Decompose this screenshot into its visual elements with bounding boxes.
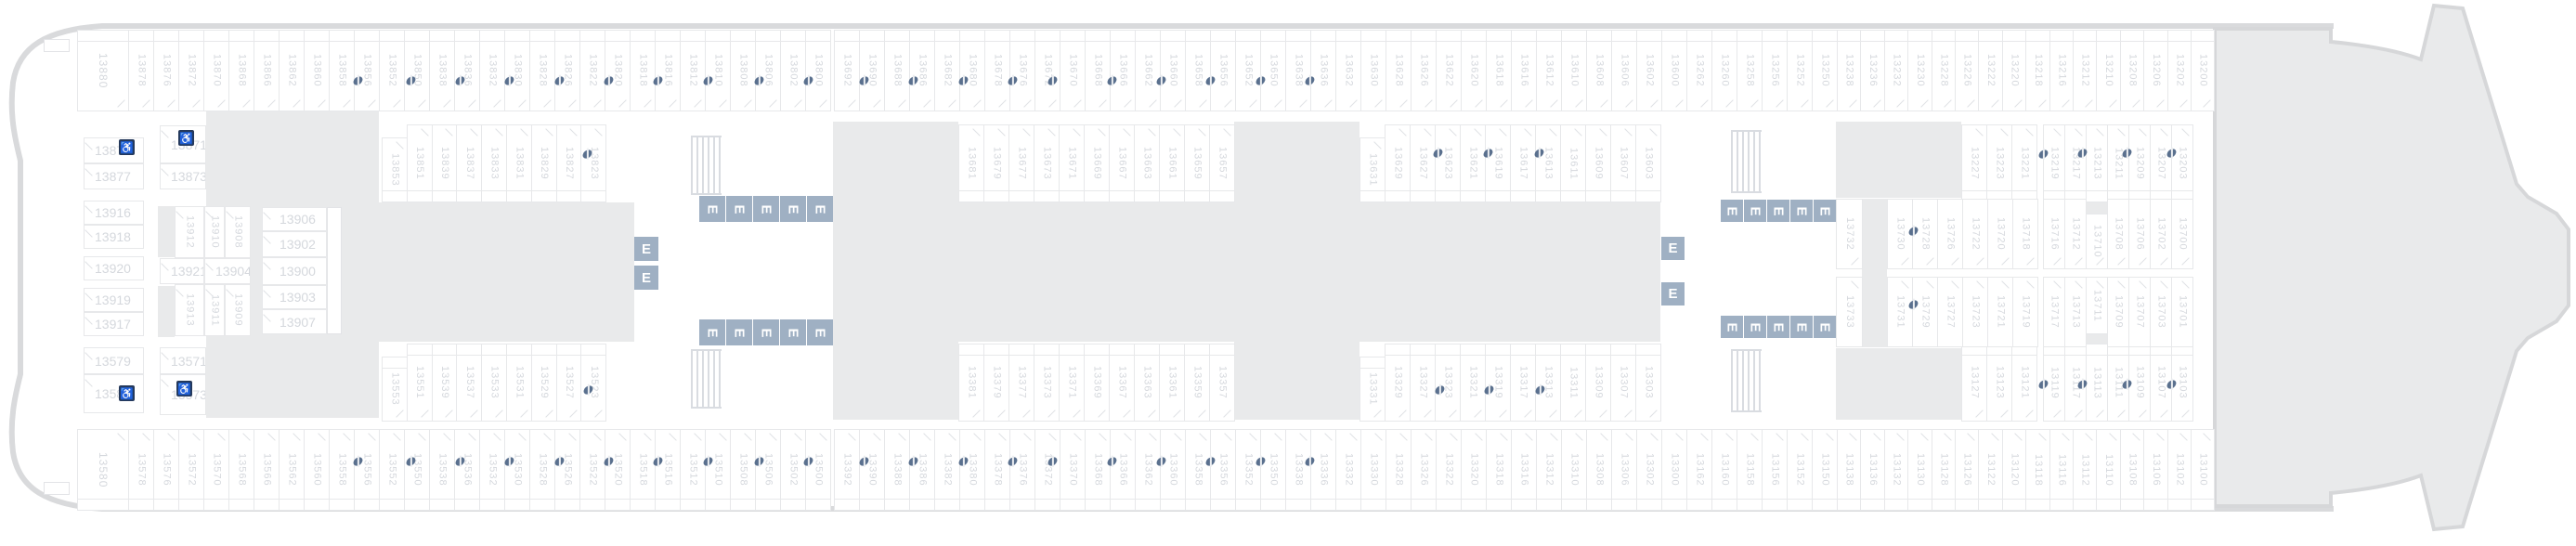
cabin-13223[interactable]: 13223 [1986, 124, 2012, 202]
cabin-13316[interactable]: 13316 [1511, 429, 1537, 511]
cabin-13238[interactable]: 13238 [1837, 30, 1861, 111]
cabin-13806[interactable]: 13806 [755, 30, 781, 111]
cabin-13808[interactable]: 13808 [730, 30, 756, 111]
cabin-13220[interactable]: 13220 [2002, 30, 2026, 111]
cabin-13356[interactable]: 13356 [1210, 429, 1236, 511]
cabin-13900[interactable]: 13900 [262, 257, 327, 285]
cabin-13330[interactable]: 13330 [1360, 429, 1386, 511]
cabin-13370[interactable]: 13370 [1060, 429, 1086, 511]
cabin-13118[interactable]: 13118 [2025, 429, 2049, 511]
cabin-13636[interactable]: 13636 [1310, 30, 1336, 111]
cabin-13686[interactable]: 13686 [909, 30, 935, 111]
cabin-13878[interactable]: 13878 [128, 30, 154, 111]
cabin-13228[interactable]: 13228 [1932, 30, 1956, 111]
cabin-13523[interactable]: 13523 [580, 344, 606, 422]
cabin-13368[interactable]: 13368 [1085, 429, 1111, 511]
cabin-13533[interactable]: 13533 [481, 344, 507, 422]
cabin-13550[interactable]: 13550 [404, 429, 430, 511]
cabin-13904[interactable]: 13904 [204, 258, 251, 284]
cabin-13371[interactable]: 13371 [1059, 344, 1085, 422]
cabin-13902[interactable]: 13902 [262, 231, 327, 257]
cabin-13912[interactable]: 13912 [175, 206, 204, 258]
cabin-13669[interactable]: 13669 [1084, 124, 1110, 202]
cabin-13602[interactable]: 13602 [1636, 30, 1662, 111]
cabin-13720[interactable]: 13720 [1987, 199, 2013, 269]
cabin-13626[interactable]: 13626 [1411, 30, 1437, 111]
cabin-13528[interactable]: 13528 [529, 429, 555, 511]
cabin-13920[interactable]: 13920 [84, 256, 144, 280]
cabin-13833[interactable]: 13833 [481, 124, 507, 202]
cabin-13658[interactable]: 13658 [1185, 30, 1211, 111]
cabin-13911[interactable]: 13911 [204, 284, 225, 336]
cabin-13619[interactable]: 13619 [1485, 124, 1511, 202]
cabin-13377[interactable]: 13377 [1008, 344, 1034, 422]
cabin-13226[interactable]: 13226 [1955, 30, 1979, 111]
cabin-13668[interactable]: 13668 [1085, 30, 1111, 111]
cabin-13700[interactable]: 13700 [2171, 199, 2193, 269]
cabin-13128[interactable]: 13128 [1932, 429, 1956, 511]
cabin-13816[interactable]: 13816 [655, 30, 681, 111]
cabin-13250[interactable]: 13250 [1812, 30, 1838, 111]
cabin-13386[interactable]: 13386 [909, 429, 935, 511]
cabin-13631[interactable]: 13631 [1360, 137, 1386, 202]
cabin-13203[interactable]: 13203 [2171, 124, 2193, 202]
cabin-13690[interactable]: 13690 [859, 30, 885, 111]
cabin-13300[interactable]: 13300 [1661, 429, 1687, 511]
cabin-13620[interactable]: 13620 [1461, 30, 1487, 111]
cabin-13710[interactable]: 13710 [2086, 214, 2108, 269]
cabin-13663[interactable]: 13663 [1134, 124, 1160, 202]
cabin-13506[interactable]: 13506 [755, 429, 781, 511]
cabin-13827[interactable]: 13827 [556, 124, 582, 202]
cabin-number: 13611 [1568, 148, 1579, 180]
cabin-13708[interactable]: 13708 [2107, 199, 2129, 269]
cabin-13307[interactable]: 13307 [1610, 344, 1636, 422]
cabin-13907[interactable]: 13907 [262, 309, 327, 334]
cabin-13729[interactable]: 13729 [1912, 277, 1938, 347]
cabin-13913[interactable]: 13913 [175, 284, 204, 336]
cabin-13568[interactable]: 13568 [228, 429, 254, 511]
cabin-13306[interactable]: 13306 [1611, 429, 1637, 511]
cabin-13350[interactable]: 13350 [1260, 429, 1286, 511]
cabin-13818[interactable]: 13818 [630, 30, 656, 111]
cabin-13158[interactable]: 13158 [1737, 429, 1763, 511]
cabin-13121[interactable]: 13121 [2011, 344, 2037, 422]
cabin-13836[interactable]: 13836 [454, 30, 480, 111]
cabin-13392[interactable]: 13392 [834, 429, 860, 511]
cabin-13916[interactable]: 13916 [84, 201, 144, 225]
cabin-13320[interactable]: 13320 [1461, 429, 1487, 511]
cabin-13216[interactable]: 13216 [2049, 30, 2074, 111]
cabin-13211[interactable]: 13211 [2107, 124, 2129, 202]
cabin-13578[interactable]: 13578 [128, 429, 154, 511]
cabin-13376[interactable]: 13376 [1009, 429, 1035, 511]
cabin-13209[interactable]: 13209 [2128, 124, 2151, 202]
cabin-13152[interactable]: 13152 [1787, 429, 1813, 511]
cabin-13910[interactable]: 13910 [204, 206, 225, 258]
cabin-13102[interactable]: 13102 [2167, 429, 2192, 511]
cabin-13709[interactable]: 13709 [2107, 277, 2129, 347]
cabin-13210[interactable]: 13210 [2096, 30, 2120, 111]
cabin-13122[interactable]: 13122 [1978, 429, 2002, 511]
cabin-13562[interactable]: 13562 [279, 429, 305, 511]
cabin-13838[interactable]: 13838 [429, 30, 455, 111]
cabin-13650[interactable]: 13650 [1260, 30, 1286, 111]
cabin-13508[interactable]: 13508 [730, 429, 756, 511]
cabin-13627[interactable]: 13627 [1410, 124, 1436, 202]
cabin-13571[interactable]: 13571 [160, 347, 206, 374]
cabin-13310[interactable]: 13310 [1561, 429, 1587, 511]
cabin-13200[interactable]: 13200 [2191, 30, 2215, 111]
cabin-13670[interactable]: 13670 [1060, 30, 1086, 111]
cabin-13108[interactable]: 13108 [2120, 429, 2144, 511]
cabin-13113[interactable]: 13113 [2086, 344, 2108, 422]
cabin-13612[interactable]: 13612 [1536, 30, 1562, 111]
cabin-13308[interactable]: 13308 [1586, 429, 1612, 511]
cabin-13830[interactable]: 13830 [504, 30, 530, 111]
cabin-13236[interactable]: 13236 [1860, 30, 1884, 111]
cabin-13331[interactable]: 13331 [1360, 357, 1386, 422]
cabin-13837[interactable]: 13837 [456, 124, 482, 202]
cabin-13680[interactable]: 13680 [959, 30, 985, 111]
cabin-13309[interactable]: 13309 [1585, 344, 1611, 422]
cabin-13372[interactable]: 13372 [1034, 429, 1060, 511]
cabin-13162[interactable]: 13162 [1686, 429, 1712, 511]
cabin-13212[interactable]: 13212 [2073, 30, 2097, 111]
cabin-13717[interactable]: 13717 [2043, 277, 2065, 347]
cabin-13510[interactable]: 13510 [705, 429, 731, 511]
cabin-13373[interactable]: 13373 [1034, 344, 1060, 422]
cabin-13613[interactable]: 13613 [1535, 124, 1561, 202]
cabin-13820[interactable]: 13820 [605, 30, 631, 111]
cabin-13572[interactable]: 13572 [178, 429, 204, 511]
cabin-13529[interactable]: 13529 [531, 344, 557, 422]
cabin-13828[interactable]: 13828 [529, 30, 555, 111]
cabin-13712[interactable]: 13712 [2064, 199, 2087, 269]
cabin-13716[interactable]: 13716 [2043, 199, 2065, 269]
cabin-13336[interactable]: 13336 [1310, 429, 1336, 511]
cabin-13853[interactable]: 13853 [382, 137, 408, 202]
cabin-13382[interactable]: 13382 [934, 429, 960, 511]
cabin-13826[interactable]: 13826 [554, 30, 580, 111]
cabin-13390[interactable]: 13390 [859, 429, 885, 511]
cabin-13918[interactable]: 13918 [84, 225, 144, 249]
cabin-13538[interactable]: 13538 [429, 429, 455, 511]
cabin-13262[interactable]: 13262 [1686, 30, 1712, 111]
cabin-13338[interactable]: 13338 [1285, 429, 1311, 511]
cabin-13217[interactable]: 13217 [2064, 124, 2087, 202]
cabin-13621[interactable]: 13621 [1460, 124, 1486, 202]
cabin-13919[interactable]: 13919 [84, 288, 144, 312]
cabin-13606[interactable]: 13606 [1611, 30, 1637, 111]
cabin-13608[interactable]: 13608 [1586, 30, 1612, 111]
cabin-13728[interactable]: 13728 [1912, 199, 1938, 269]
cabin-13610[interactable]: 13610 [1561, 30, 1587, 111]
cabin-13860[interactable]: 13860 [304, 30, 330, 111]
cabin-13600[interactable]: 13600 [1661, 30, 1687, 111]
cabin-13707[interactable]: 13707 [2128, 277, 2151, 347]
cabin-13112[interactable]: 13112 [2073, 429, 2097, 511]
cabin-13850[interactable]: 13850 [404, 30, 430, 111]
cabin-13537[interactable]: 13537 [456, 344, 482, 422]
cabin-13358[interactable]: 13358 [1185, 429, 1211, 511]
cabin-13623[interactable]: 13623 [1435, 124, 1461, 202]
cabin-13682[interactable]: 13682 [934, 30, 960, 111]
cabin-13618[interactable]: 13618 [1486, 30, 1512, 111]
cabin-13156[interactable]: 13156 [1762, 429, 1788, 511]
cabin-13662[interactable]: 13662 [1135, 30, 1161, 111]
cabin-13106[interactable]: 13106 [2143, 429, 2167, 511]
cabin-13616[interactable]: 13616 [1511, 30, 1537, 111]
cabin-13367[interactable]: 13367 [1109, 344, 1135, 422]
cabin-13812[interactable]: 13812 [680, 30, 706, 111]
cabin-13520[interactable]: 13520 [605, 429, 631, 511]
cabin-13502[interactable]: 13502 [780, 429, 806, 511]
cabin-13369[interactable]: 13369 [1084, 344, 1110, 422]
cabin-13527[interactable]: 13527 [556, 344, 582, 422]
cabin-13666[interactable]: 13666 [1110, 30, 1136, 111]
cabin-13313[interactable]: 13313 [1535, 344, 1561, 422]
cabin-13207[interactable]: 13207 [2150, 124, 2172, 202]
cabin-13327[interactable]: 13327 [1410, 344, 1436, 422]
cabin-13256[interactable]: 13256 [1762, 30, 1788, 111]
cabin-13903[interactable]: 13903 [262, 285, 327, 309]
cabin-13526[interactable]: 13526 [554, 429, 580, 511]
cabin-13858[interactable]: 13858 [329, 30, 355, 111]
cabin-13862[interactable]: 13862 [279, 30, 305, 111]
cabin-13719[interactable]: 13719 [2012, 277, 2038, 347]
cabin-13576[interactable]: 13576 [153, 429, 179, 511]
cabin-13868[interactable]: 13868 [228, 30, 254, 111]
cabin-13352[interactable]: 13352 [1235, 429, 1261, 511]
cabin-13230[interactable]: 13230 [1907, 30, 1932, 111]
cabin-13328[interactable]: 13328 [1386, 429, 1412, 511]
cabin-13733[interactable]: 13733 [1836, 277, 1863, 347]
cabin-13713[interactable]: 13713 [2064, 277, 2087, 347]
cabin-13673[interactable]: 13673 [1034, 124, 1060, 202]
cabin-13607[interactable]: 13607 [1610, 124, 1636, 202]
cabin-13566[interactable]: 13566 [254, 429, 280, 511]
cabin-13917[interactable]: 13917 [84, 312, 144, 336]
cabin-13138[interactable]: 13138 [1837, 429, 1861, 511]
cabin-13361[interactable]: 13361 [1159, 344, 1185, 422]
cabin-13218[interactable]: 13218 [2025, 30, 2049, 111]
cabin-13681[interactable]: 13681 [958, 124, 984, 202]
cabin-13872[interactable]: 13872 [178, 30, 204, 111]
cabin-13629[interactable]: 13629 [1385, 124, 1411, 202]
cabin-13150[interactable]: 13150 [1812, 429, 1838, 511]
cabin-13321[interactable]: 13321 [1460, 344, 1486, 422]
cabin-13676[interactable]: 13676 [1009, 30, 1035, 111]
cabin-13721[interactable]: 13721 [1987, 277, 2013, 347]
cabin-13317[interactable]: 13317 [1510, 344, 1536, 422]
cabin-13522[interactable]: 13522 [579, 429, 605, 511]
cabin-13222[interactable]: 13222 [1978, 30, 2002, 111]
cabin-13628[interactable]: 13628 [1386, 30, 1412, 111]
cabin-13558[interactable]: 13558 [329, 429, 355, 511]
cabin-13319[interactable]: 13319 [1485, 344, 1511, 422]
cabin-13518[interactable]: 13518 [630, 429, 656, 511]
cabin-13500[interactable]: 13500 [805, 429, 831, 511]
cabin-13678[interactable]: 13678 [984, 30, 1010, 111]
cabin-13852[interactable]: 13852 [379, 30, 405, 111]
cabin-13130[interactable]: 13130 [1907, 429, 1932, 511]
cabin-13661[interactable]: 13661 [1159, 124, 1185, 202]
cabin-13536[interactable]: 13536 [454, 429, 480, 511]
cabin-13126[interactable]: 13126 [1955, 429, 1979, 511]
cabin-13672[interactable]: 13672 [1034, 30, 1060, 111]
cabin-13378[interactable]: 13378 [984, 429, 1010, 511]
cabin-13810[interactable]: 13810 [705, 30, 731, 111]
cabin-13560[interactable]: 13560 [304, 429, 330, 511]
cabin-13221[interactable]: 13221 [2011, 124, 2037, 202]
cabin-13711[interactable]: 13711 [2086, 277, 2108, 334]
cabin-13123[interactable]: 13123 [1986, 344, 2012, 422]
cabin-13531[interactable]: 13531 [506, 344, 532, 422]
cabin-13556[interactable]: 13556 [354, 429, 380, 511]
cabin-13213[interactable]: 13213 [2086, 124, 2108, 202]
cabin-13866[interactable]: 13866 [254, 30, 280, 111]
cabin-13660[interactable]: 13660 [1160, 30, 1186, 111]
cabin-13851[interactable]: 13851 [407, 124, 433, 202]
cabin-13318[interactable]: 13318 [1486, 429, 1512, 511]
cabin-13652[interactable]: 13652 [1235, 30, 1261, 111]
cabin-13202[interactable]: 13202 [2167, 30, 2192, 111]
cabin-13732[interactable]: 13732 [1836, 199, 1863, 269]
cabin-13657[interactable]: 13657 [1209, 124, 1235, 202]
cabin-13611[interactable]: 13611 [1560, 124, 1586, 202]
cabin-13829[interactable]: 13829 [531, 124, 557, 202]
cabin-13671[interactable]: 13671 [1059, 124, 1085, 202]
cabin-13603[interactable]: 13603 [1635, 124, 1661, 202]
cabin-13362[interactable]: 13362 [1135, 429, 1161, 511]
cabin-13679[interactable]: 13679 [983, 124, 1009, 202]
cabin-13875[interactable]: 13875 [84, 137, 144, 163]
cabin-13823[interactable]: 13823 [580, 124, 606, 202]
cabin-13329[interactable]: 13329 [1385, 344, 1411, 422]
cabin-13677[interactable]: 13677 [1008, 124, 1034, 202]
cabin-13132[interactable]: 13132 [1884, 429, 1908, 511]
cabin-13727[interactable]: 13727 [1937, 277, 1963, 347]
cabin-13553[interactable]: 13553 [382, 357, 408, 422]
cabin-13909[interactable]: 13909 [225, 284, 251, 336]
cabin-13322[interactable]: 13322 [1436, 429, 1462, 511]
cabin-13638[interactable]: 13638 [1285, 30, 1311, 111]
cabin-13551[interactable]: 13551 [407, 344, 433, 422]
cabin-13692[interactable]: 13692 [834, 30, 860, 111]
cabin-13802[interactable]: 13802 [780, 30, 806, 111]
cabin-13366[interactable]: 13366 [1110, 429, 1136, 511]
cabin-13722[interactable]: 13722 [1962, 199, 1988, 269]
cabin-13800[interactable]: 13800 [805, 30, 831, 111]
cabin-13379[interactable]: 13379 [983, 344, 1009, 422]
cabin-13323[interactable]: 13323 [1435, 344, 1461, 422]
cabin-13856[interactable]: 13856 [354, 30, 380, 111]
cabin-13718[interactable]: 13718 [2012, 199, 2038, 269]
cabin-13252[interactable]: 13252 [1787, 30, 1813, 111]
cabin-13609[interactable]: 13609 [1585, 124, 1611, 202]
cabin-13302[interactable]: 13302 [1636, 429, 1662, 511]
cabin-13208[interactable]: 13208 [2120, 30, 2144, 111]
cabin-13630[interactable]: 13630 [1360, 30, 1386, 111]
cabin-13906[interactable]: 13906 [262, 207, 327, 231]
cabin-13877[interactable]: 13877 [84, 163, 144, 189]
cabin-13688[interactable]: 13688 [884, 30, 910, 111]
cabin-13659[interactable]: 13659 [1184, 124, 1210, 202]
cabin-13822[interactable]: 13822 [579, 30, 605, 111]
cabin-13532[interactable]: 13532 [479, 429, 505, 511]
cabin-13570[interactable]: 13570 [203, 429, 229, 511]
cabin-13258[interactable]: 13258 [1737, 30, 1763, 111]
cabin-13726[interactable]: 13726 [1937, 199, 1963, 269]
cabin-13539[interactable]: 13539 [432, 344, 458, 422]
cabin-13703[interactable]: 13703 [2150, 277, 2172, 347]
cabin-13260[interactable]: 13260 [1711, 30, 1737, 111]
cabin-13622[interactable]: 13622 [1436, 30, 1462, 111]
cabin-13579[interactable]: 13579 [84, 347, 144, 374]
cabin-13706[interactable]: 13706 [2128, 199, 2151, 269]
cabin-13723[interactable]: 13723 [1962, 277, 1988, 347]
cabin-13110[interactable]: 13110 [2096, 429, 2120, 511]
cabin-13667[interactable]: 13667 [1109, 124, 1135, 202]
cabin-13581[interactable]: 13581 [84, 374, 144, 413]
cabin-13516[interactable]: 13516 [655, 429, 681, 511]
cabin-13219[interactable]: 13219 [2043, 124, 2065, 202]
cabin-13312[interactable]: 13312 [1536, 429, 1562, 511]
cabin-13136[interactable]: 13136 [1860, 429, 1884, 511]
cabin-13363[interactable]: 13363 [1134, 344, 1160, 422]
cabin-13380[interactable]: 13380 [959, 429, 985, 511]
cabin-13206[interactable]: 13206 [2143, 30, 2167, 111]
cabin-13100[interactable]: 13100 [2191, 429, 2215, 511]
cabin-13357[interactable]: 13357 [1209, 344, 1235, 422]
cabin-13701[interactable]: 13701 [2171, 277, 2193, 347]
cabin-13232[interactable]: 13232 [1884, 30, 1908, 111]
cabin-13552[interactable]: 13552 [379, 429, 405, 511]
cabin-13702[interactable]: 13702 [2150, 199, 2172, 269]
cabin-13359[interactable]: 13359 [1184, 344, 1210, 422]
cabin-13831[interactable]: 13831 [506, 124, 532, 202]
cabin-13617[interactable]: 13617 [1510, 124, 1536, 202]
cabin-13311[interactable]: 13311 [1560, 344, 1586, 422]
cabin-13388[interactable]: 13388 [884, 429, 910, 511]
cabin-13530[interactable]: 13530 [504, 429, 530, 511]
cabin-13731[interactable]: 13731 [1887, 277, 1913, 347]
cabin-13120[interactable]: 13120 [2002, 429, 2026, 511]
cabin-13873[interactable]: 13873 [160, 163, 206, 189]
cabin-13160[interactable]: 13160 [1711, 429, 1737, 511]
cabin-13116[interactable]: 13116 [2049, 429, 2074, 511]
cabin-13332[interactable]: 13332 [1335, 429, 1361, 511]
cabin-13880[interactable]: 13880 [77, 30, 129, 111]
cabin-13360[interactable]: 13360 [1160, 429, 1186, 511]
cabin-13512[interactable]: 13512 [680, 429, 706, 511]
cabin-13227[interactable]: 13227 [1961, 124, 1987, 202]
cabin-13921[interactable]: 13921 [160, 258, 204, 284]
cabin-13381[interactable]: 13381 [958, 344, 984, 422]
cabin-13839[interactable]: 13839 [432, 124, 458, 202]
cabin-13876[interactable]: 13876 [153, 30, 179, 111]
cabin-13303[interactable]: 13303 [1635, 344, 1661, 422]
cabin-13127[interactable]: 13127 [1961, 344, 1987, 422]
cabin-13656[interactable]: 13656 [1210, 30, 1236, 111]
cabin-13580[interactable]: 13580 [77, 429, 129, 511]
cabin-13832[interactable]: 13832 [479, 30, 505, 111]
cabin-13632[interactable]: 13632 [1335, 30, 1361, 111]
cabin-13908[interactable]: 13908 [225, 206, 251, 258]
cabin-13870[interactable]: 13870 [203, 30, 229, 111]
cabin-13326[interactable]: 13326 [1411, 429, 1437, 511]
